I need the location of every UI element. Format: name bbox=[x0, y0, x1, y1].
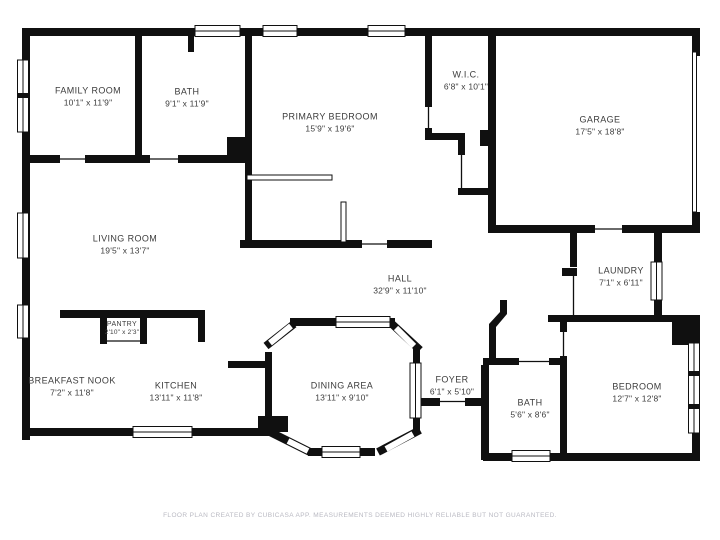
door-lines bbox=[60, 107, 622, 402]
bay-windows bbox=[270, 326, 414, 451]
floor-plan-canvas: FAMILY ROOM 10'1" x 11'9" BATH 9'1" x 11… bbox=[0, 0, 720, 540]
foyer-corner-wall bbox=[489, 300, 507, 362]
walls bbox=[22, 28, 700, 461]
floor-plan-drawing bbox=[0, 0, 720, 540]
window-dividers bbox=[18, 93, 700, 409]
disclaimer-text: FLOOR PLAN CREATED BY CUBICASA APP. MEAS… bbox=[0, 512, 720, 519]
diagonal-walls bbox=[266, 324, 420, 452]
